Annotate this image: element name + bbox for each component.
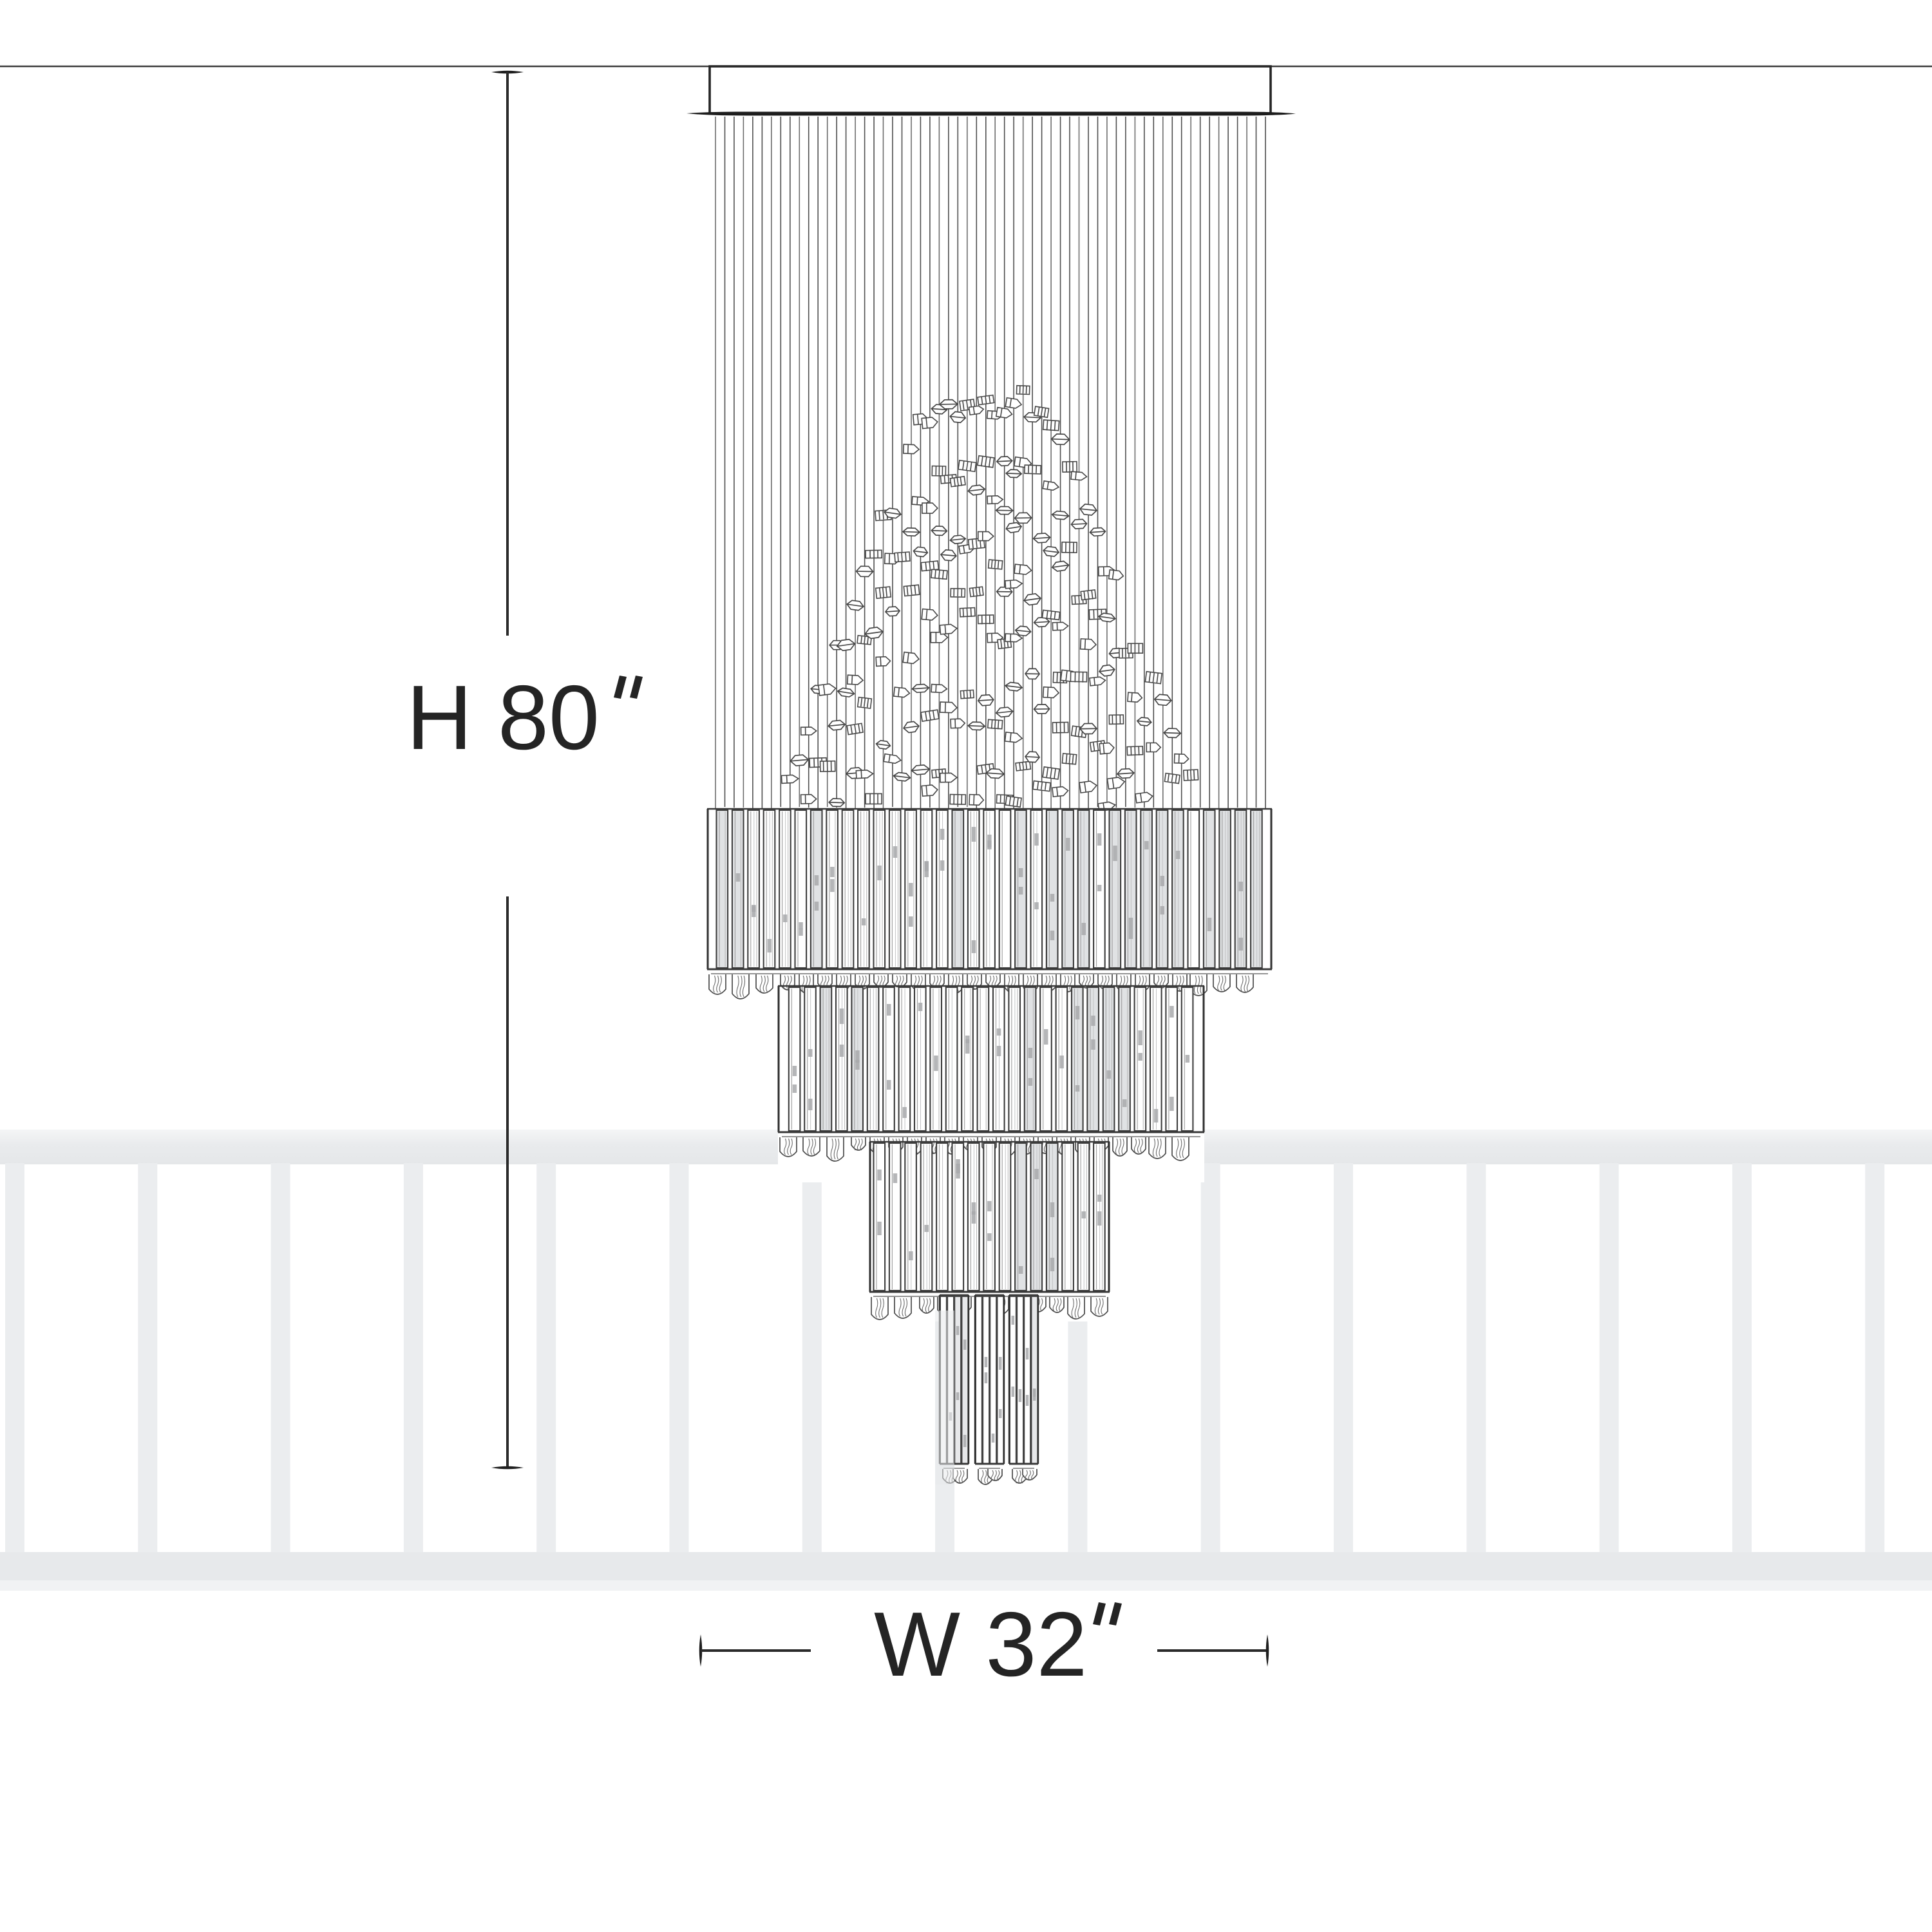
svg-text:W 32: W 32 — [874, 1593, 1087, 1696]
svg-text:H 80: H 80 — [406, 667, 600, 769]
